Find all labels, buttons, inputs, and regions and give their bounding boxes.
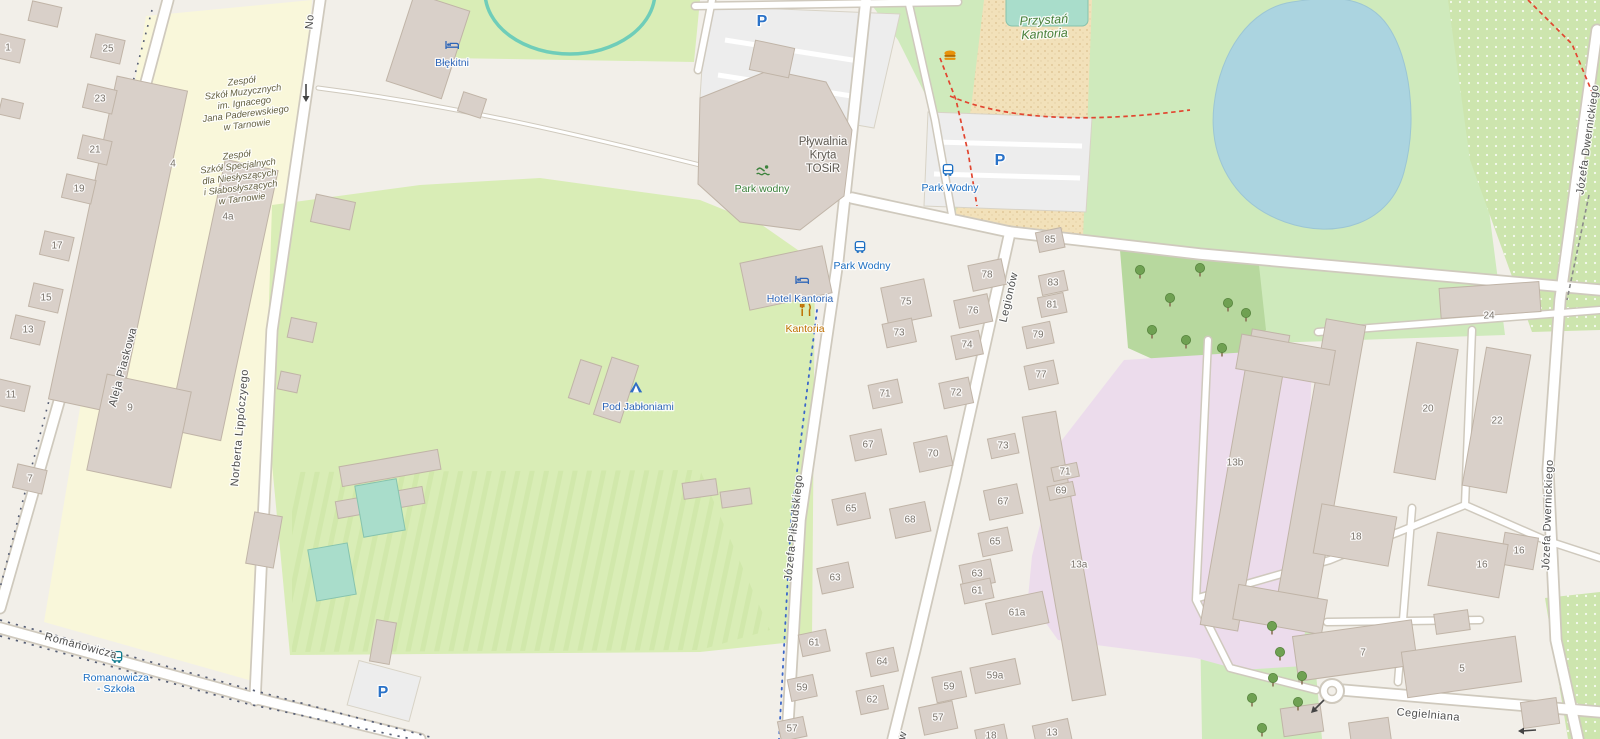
house-number: 17 (51, 241, 63, 252)
poi-label: Pod Jabłoniami (602, 401, 674, 413)
house-number: 13b (1227, 458, 1244, 469)
house-number: 67 (997, 497, 1009, 508)
house-number: 18 (1350, 532, 1362, 543)
house-number: 9 (127, 403, 133, 414)
map-canvas[interactable]: PPP 12523211917151311744a975737876747172… (0, 0, 1600, 739)
house-number: 13 (22, 325, 34, 336)
house-number: 73 (893, 328, 905, 339)
house-number: 83 (1047, 278, 1059, 289)
house-number: 22 (1491, 416, 1503, 427)
bus-stop-icon (943, 165, 952, 176)
house-number: 21 (89, 145, 101, 156)
pond (1213, 0, 1411, 229)
house-number: 72 (950, 388, 962, 399)
parking-icon: P (757, 13, 768, 30)
house-number: 19 (73, 184, 85, 195)
house-number: 81 (1046, 300, 1058, 311)
house-number: 85 (1044, 235, 1056, 246)
house-number: 16 (1476, 560, 1488, 571)
pool-basin (355, 479, 405, 538)
house-number: 77 (1035, 370, 1047, 381)
bldglbl-label: Kryta (810, 150, 837, 162)
house-number: 71 (1059, 467, 1071, 478)
pool-basin (308, 543, 356, 601)
house-number: 74 (961, 340, 973, 351)
poi-label: Kantoria (785, 323, 824, 335)
transit-stop-label: Park Wodny (834, 260, 892, 272)
house-number: 65 (989, 537, 1001, 548)
house-number: 69 (1055, 486, 1067, 497)
oneway-arrow-icon (1522, 730, 1536, 731)
house-number: 63 (829, 573, 841, 584)
bus-stop-icon (855, 242, 864, 253)
house-number: 63 (971, 569, 983, 580)
house-number: 1 (5, 43, 11, 54)
house-number: 57 (932, 713, 944, 724)
house-number: 13 (1046, 728, 1058, 739)
house-number: 57 (786, 724, 798, 735)
house-number: 11 (6, 390, 17, 401)
house-number: 20 (1422, 404, 1434, 415)
transit-stop-label: - Szkoła (97, 683, 135, 695)
house-number: 61a (1009, 608, 1026, 619)
street-label: No (303, 14, 316, 30)
transit-stop-label: Park Wodny (922, 182, 980, 194)
house-number: 78 (981, 270, 993, 281)
house-number: 59a (987, 671, 1004, 682)
house-number: 25 (102, 44, 114, 55)
bldglbl-label: TOSiR (806, 163, 840, 175)
house-number: 76 (967, 306, 979, 317)
map-svg[interactable]: PPP 12523211917151311744a975737876747172… (0, 0, 1600, 739)
house-number: 16 (1513, 546, 1525, 557)
house-number: 61 (808, 638, 820, 649)
house-number: 73 (997, 441, 1009, 452)
house-number: 18 (985, 731, 997, 739)
poi-label: Park wodny (735, 183, 791, 195)
house-number: 13a (1071, 560, 1088, 571)
house-number: 65 (845, 504, 857, 515)
house-number: 62 (866, 695, 878, 706)
parking-icon: P (378, 684, 389, 701)
house-number: 79 (1032, 330, 1044, 341)
house-number: 7 (1360, 648, 1366, 659)
house-number: 71 (879, 389, 891, 400)
parking-icon: P (995, 152, 1006, 169)
house-number: 75 (900, 297, 912, 308)
house-number: 61 (971, 586, 983, 597)
house-number: 7 (27, 474, 33, 485)
house-number: 70 (927, 449, 939, 460)
house-number: 68 (904, 515, 916, 526)
house-number: 64 (876, 657, 888, 668)
house-number: 15 (40, 293, 52, 304)
bldglbl-label: Pływalnia (799, 136, 848, 148)
poi-label: Błękitni (435, 57, 469, 69)
poi-label: Hotel Kantoria (767, 293, 834, 305)
house-number: 67 (862, 440, 874, 451)
house-number: 4a (222, 212, 234, 223)
house-number: 4 (170, 159, 176, 170)
house-number: 24 (1483, 311, 1495, 322)
marina-label: Kantoria (1021, 26, 1068, 42)
fast_food-icon (944, 51, 955, 60)
house-number: 59 (943, 682, 955, 693)
house-number: 59 (796, 683, 808, 694)
house-number: 5 (1459, 664, 1465, 675)
house-number: 23 (94, 94, 106, 105)
marina-label-block: PrzystańKantoria (1019, 12, 1069, 43)
